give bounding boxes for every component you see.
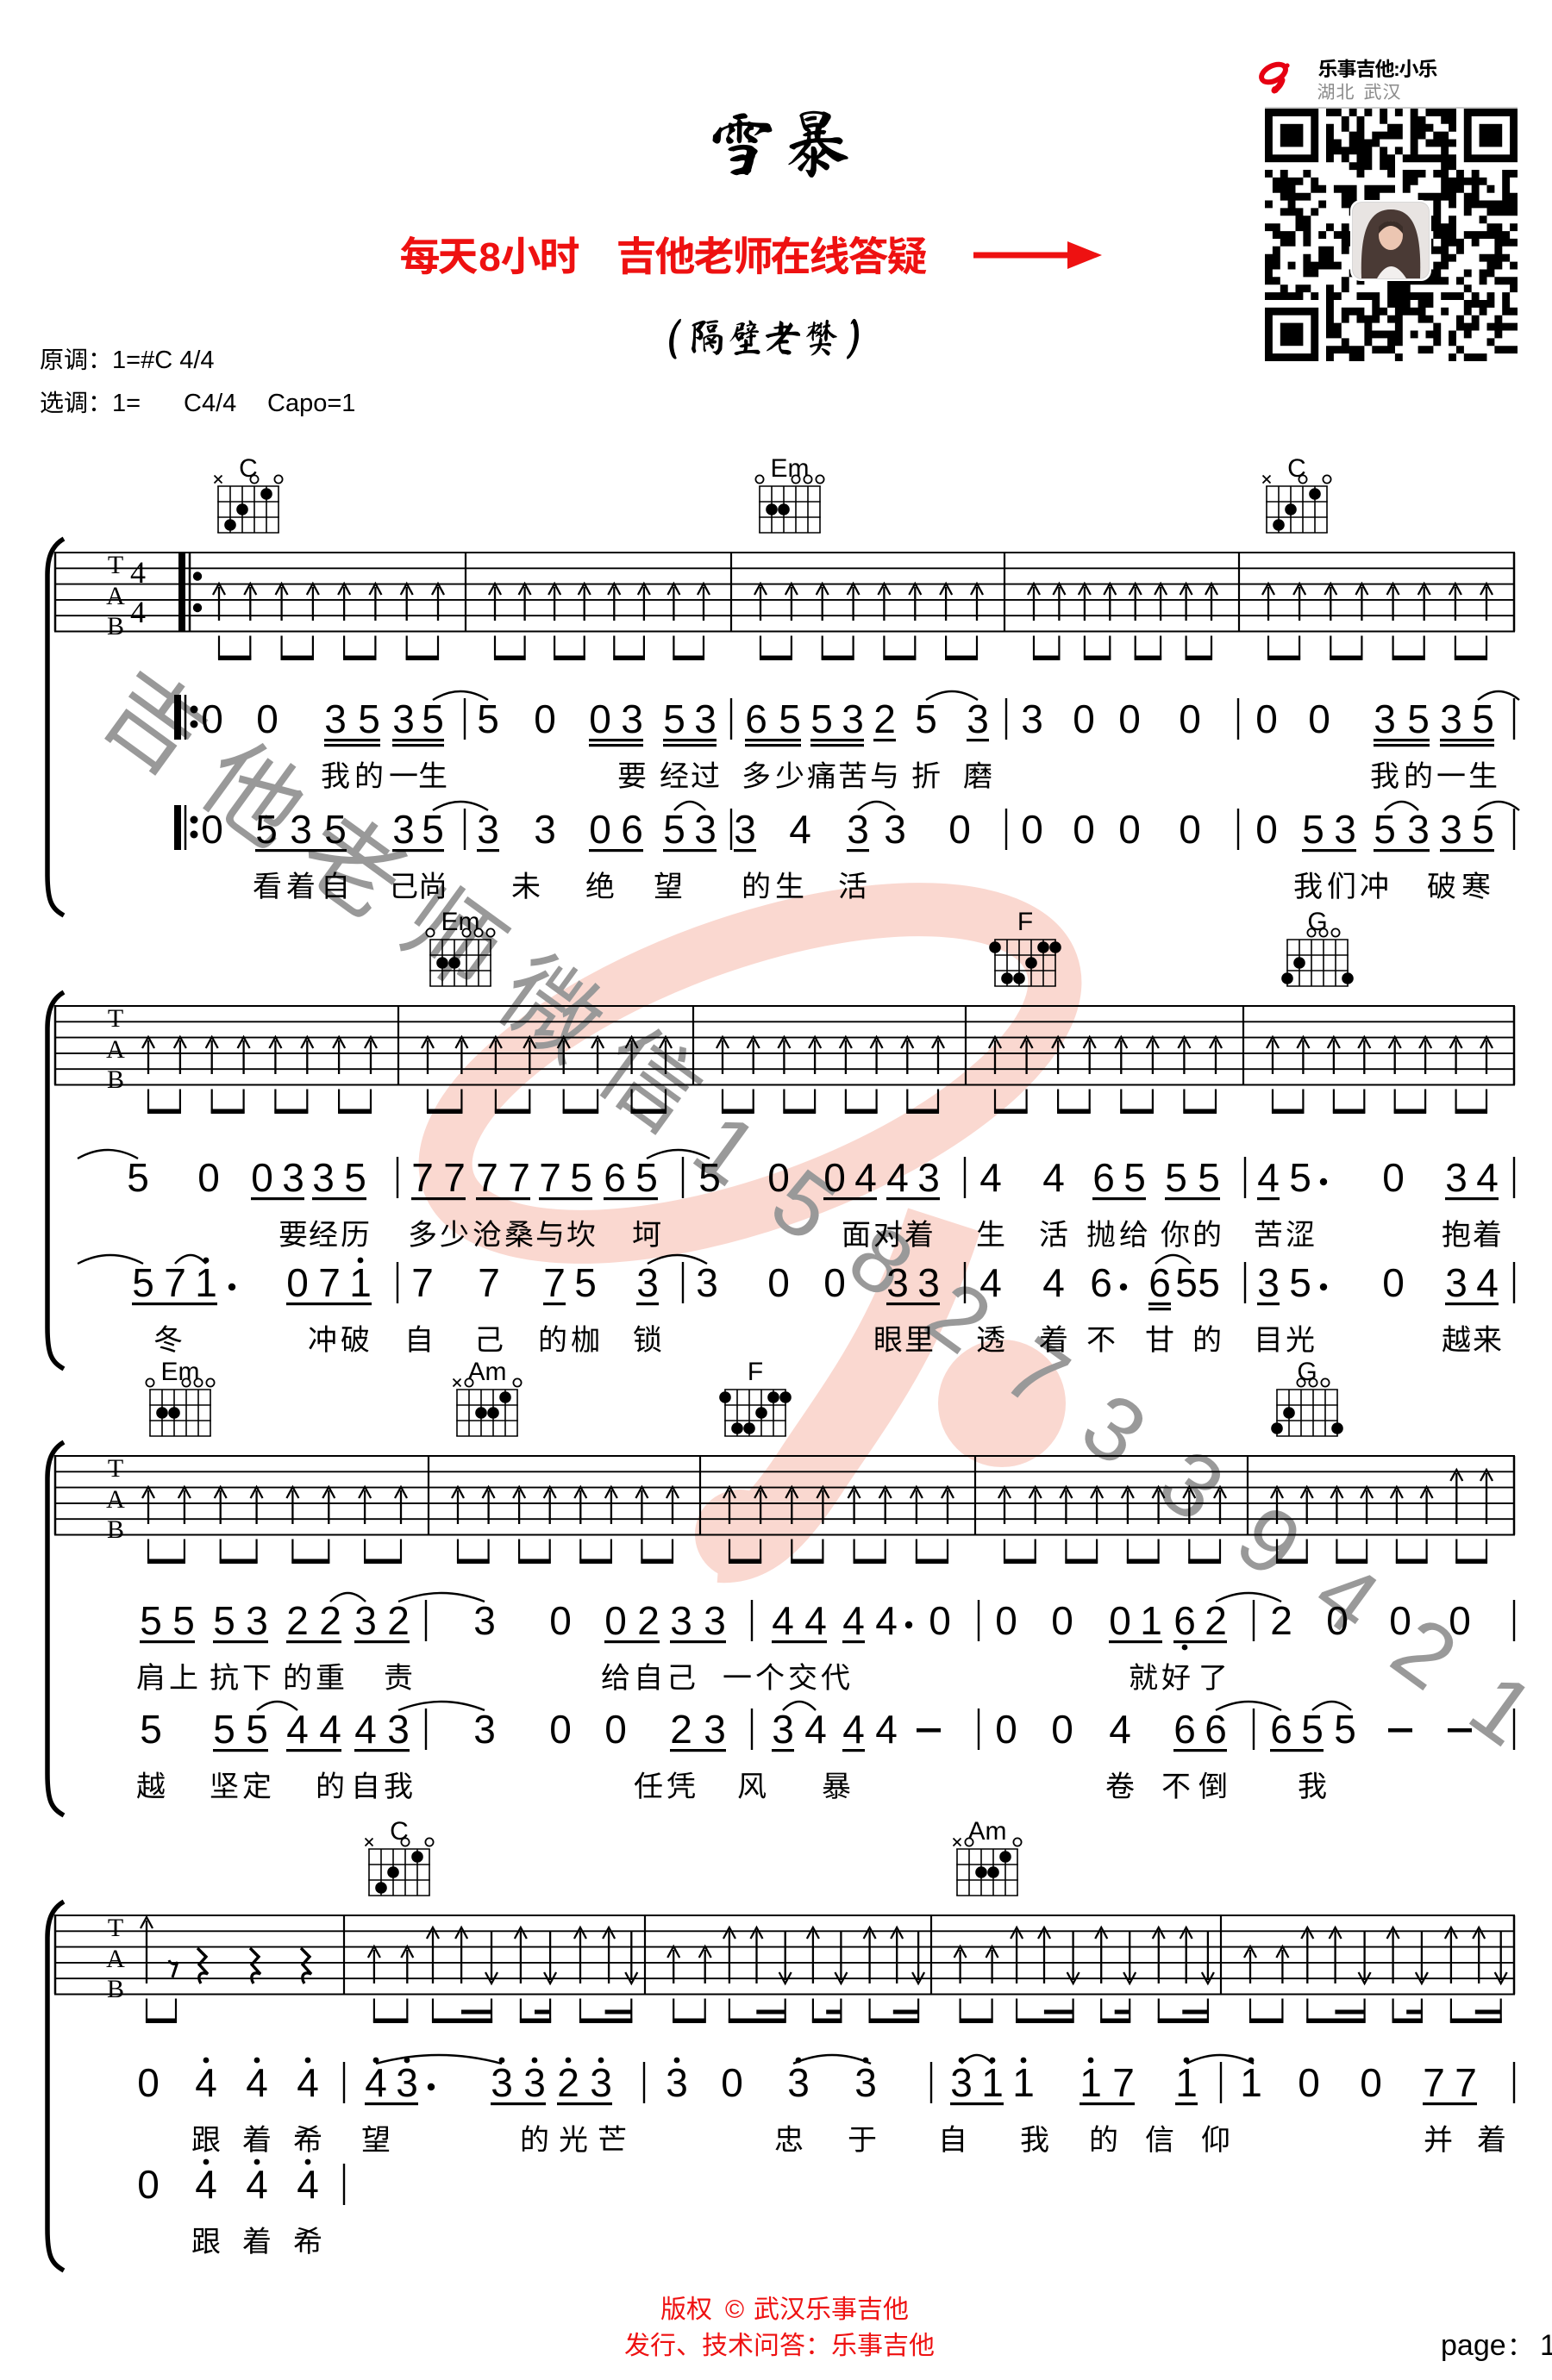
svg-text:0: 0 [1179,807,1201,852]
svg-text:1: 1 [981,2060,1004,2105]
svg-text:0: 0 [589,807,611,852]
svg-text:F: F [1017,908,1033,936]
svg-text:0: 0 [286,1260,309,1305]
svg-text:3: 3 [590,2060,612,2105]
svg-text:0: 0 [1179,697,1201,741]
svg-text:4: 4 [886,1155,909,1200]
svg-text:1: 1 [1540,2329,1552,2362]
svg-text:3: 3 [694,807,717,852]
svg-text:3: 3 [354,1598,377,1643]
svg-text:3: 3 [886,1260,909,1305]
svg-text:4: 4 [1476,1260,1499,1305]
svg-text:4: 4 [854,1155,877,1200]
svg-text:3: 3 [324,697,347,741]
svg-text:0: 0 [197,1155,220,1200]
svg-text:0: 0 [201,697,223,741]
svg-text::: : [1393,58,1400,80]
svg-text:4: 4 [1109,1707,1131,1752]
svg-text:0: 0 [251,1155,273,1200]
svg-text:0: 0 [929,1598,951,1643]
svg-text:6: 6 [1173,1707,1196,1752]
svg-text:5: 5 [358,697,380,741]
svg-text:2: 2 [319,1598,341,1643]
svg-text:5: 5 [140,1598,162,1643]
svg-text:3: 3 [772,1707,794,1752]
svg-text:4: 4 [875,1598,898,1643]
svg-text:4: 4 [365,2060,387,2105]
svg-text:5: 5 [213,1598,235,1643]
svg-text:3: 3 [621,697,643,741]
svg-text:0: 0 [1326,1598,1349,1643]
svg-text:5: 5 [246,1707,268,1752]
svg-text:6: 6 [604,1155,626,1200]
svg-text:A: A [106,1485,125,1514]
svg-text:0: 0 [1382,1260,1405,1305]
svg-text:2: 2 [1270,1598,1292,1643]
svg-text:7: 7 [1455,2060,1477,2105]
svg-text:3: 3 [290,807,312,852]
svg-text:1: 1 [1240,2060,1262,2105]
svg-text:0: 0 [1449,1598,1471,1643]
svg-text:0: 0 [767,1260,790,1305]
svg-text:0: 0 [1051,1598,1073,1643]
svg-text:0: 0 [948,807,971,852]
svg-text:0: 0 [1298,2060,1320,2105]
svg-text:4: 4 [195,2162,217,2207]
svg-text:3: 3 [704,1707,726,1752]
svg-text:2: 2 [873,697,896,741]
svg-text:0: 0 [1051,1707,1073,1752]
svg-text:A: A [106,1945,125,1973]
svg-text:0: 0 [1021,807,1043,852]
svg-text:5: 5 [213,1707,235,1752]
svg-text:5: 5 [127,1155,149,1200]
svg-text:0: 0 [604,1707,627,1752]
svg-text:5: 5 [1302,807,1324,852]
svg-text:5: 5 [172,1598,195,1643]
svg-text:0: 0 [1255,807,1278,852]
svg-text:3: 3 [1334,807,1356,852]
svg-text:F: F [748,1358,763,1386]
svg-text:page: page [1441,2329,1506,2362]
svg-text:5: 5 [1289,1155,1311,1200]
svg-text:3: 3 [392,697,415,741]
svg-text:7: 7 [1112,2060,1135,2105]
svg-text:3: 3 [246,1598,268,1643]
svg-text:5: 5 [1198,1260,1220,1305]
svg-text:4: 4 [1042,1260,1065,1305]
svg-text:6: 6 [745,697,767,741]
svg-text:5: 5 [1175,1260,1198,1305]
svg-text:0: 0 [823,1155,846,1200]
svg-text:3: 3 [534,807,556,852]
svg-text:3: 3 [473,1598,496,1643]
svg-text:4: 4 [842,1707,865,1752]
svg-text:3: 3 [1445,1155,1468,1200]
svg-text:3: 3 [696,1260,718,1305]
svg-text:5: 5 [255,807,278,852]
svg-text:0: 0 [137,2162,160,2207]
svg-text:0: 0 [1109,1598,1131,1643]
svg-text:5: 5 [635,1155,658,1200]
svg-text:4: 4 [354,1707,377,1752]
svg-text:3: 3 [1407,807,1430,852]
svg-text:4: 4 [1042,1155,1065,1200]
svg-text:7: 7 [443,1155,466,1200]
svg-text:5: 5 [810,697,833,741]
svg-text:0: 0 [1073,807,1095,852]
svg-text:3: 3 [1374,697,1396,741]
svg-text:3: 3 [734,807,756,852]
svg-text:0: 0 [1255,697,1278,741]
svg-text:2: 2 [1205,1598,1227,1643]
svg-text:3: 3 [1257,1260,1280,1305]
svg-text:B: B [107,1515,124,1544]
svg-text:3: 3 [1021,697,1043,741]
svg-text:C4/4: C4/4 [184,390,236,417]
svg-text:5: 5 [698,1155,721,1200]
svg-text:7: 7 [543,1260,566,1305]
svg-text:3: 3 [312,1155,335,1200]
svg-text:T: T [108,1004,123,1033]
svg-text:3: 3 [477,807,499,852]
svg-text:5: 5 [422,807,444,852]
svg-text:4: 4 [246,2162,268,2207]
svg-text:3: 3 [396,2060,418,2105]
svg-text:5: 5 [140,1707,162,1752]
svg-text:5: 5 [422,697,444,741]
svg-text:0: 0 [995,1707,1017,1752]
svg-text:7: 7 [476,1155,498,1200]
svg-text:B: B [107,612,124,640]
svg-text:4: 4 [1257,1155,1280,1200]
svg-text:5: 5 [1165,1155,1187,1200]
svg-text:7: 7 [1423,2060,1445,2105]
svg-text:0: 0 [1389,1598,1411,1643]
svg-text:4: 4 [979,1260,1002,1305]
svg-text:3: 3 [282,1155,304,1200]
svg-text:T: T [108,551,123,579]
svg-text:0: 0 [1118,807,1141,852]
svg-text:5: 5 [477,697,499,741]
svg-text:7: 7 [164,1260,186,1305]
svg-text:4: 4 [297,2162,319,2207]
svg-text:0: 0 [1073,697,1095,741]
svg-text:0: 0 [1308,697,1330,741]
svg-text:5: 5 [570,1155,592,1200]
svg-text:5: 5 [1301,1707,1324,1752]
svg-text:6: 6 [1205,1707,1227,1752]
svg-text:4: 4 [842,1598,865,1643]
svg-text:0: 0 [549,1598,572,1643]
svg-text:3: 3 [917,1155,940,1200]
svg-text:4: 4 [804,1707,827,1752]
svg-text:4: 4 [979,1155,1002,1200]
svg-text:0: 0 [823,1260,846,1305]
svg-text:4: 4 [804,1598,827,1643]
svg-text:6: 6 [1090,1260,1112,1305]
svg-text:3: 3 [473,1707,496,1752]
svg-text:3: 3 [1440,697,1462,741]
svg-text:1=#C 4/4: 1=#C 4/4 [112,347,215,374]
svg-text:5: 5 [1289,1260,1311,1305]
svg-text:5: 5 [132,1260,154,1305]
svg-text:5: 5 [344,1155,366,1200]
svg-text:5: 5 [1374,807,1396,852]
svg-text:3: 3 [636,1260,659,1305]
svg-text:4: 4 [297,2060,319,2105]
svg-text:T: T [108,1914,123,1942]
svg-text:B: B [107,1065,124,1094]
svg-text:1: 1 [1175,2060,1198,2105]
svg-text:0: 0 [589,697,611,741]
svg-text:3: 3 [847,807,869,852]
svg-text:7: 7 [318,1260,341,1305]
svg-text:3: 3 [884,807,906,852]
svg-text:5: 5 [915,697,937,741]
svg-text:7: 7 [508,1155,530,1200]
svg-text:0: 0 [1382,1155,1405,1200]
svg-text:5: 5 [1334,1707,1356,1752]
svg-text:3: 3 [523,2060,546,2105]
svg-text:0: 0 [721,2060,743,2105]
svg-text:0: 0 [201,807,223,852]
svg-text:4: 4 [772,1598,794,1643]
svg-text:4: 4 [130,555,146,590]
svg-text:6: 6 [1092,1155,1115,1200]
svg-text:A: A [106,582,125,610]
svg-text:0: 0 [137,2060,160,2105]
svg-text:4: 4 [195,2060,217,2105]
svg-text:3: 3 [917,1260,940,1305]
svg-text:3: 3 [854,2060,877,2105]
svg-text:2: 2 [286,1598,309,1643]
svg-text:5: 5 [324,807,347,852]
svg-text:6: 6 [1173,1598,1196,1643]
svg-text:3: 3 [694,697,717,741]
svg-text:5: 5 [663,697,685,741]
svg-text:4: 4 [130,595,146,629]
svg-text:0: 0 [256,697,278,741]
svg-text:3: 3 [842,697,864,741]
svg-text:4: 4 [1476,1155,1499,1200]
svg-text:7: 7 [411,1155,434,1200]
svg-text:3: 3 [392,807,415,852]
svg-text:3: 3 [704,1598,726,1643]
svg-text:4: 4 [286,1707,309,1752]
svg-text:©: © [725,2296,744,2324]
svg-text:4: 4 [875,1707,898,1752]
svg-text:3: 3 [491,2060,513,2105]
svg-text:0: 0 [995,1598,1017,1643]
svg-text:B: B [107,1975,124,2003]
svg-text:0: 0 [1360,2060,1382,2105]
svg-text:6: 6 [1270,1707,1292,1752]
svg-text:7: 7 [539,1155,561,1200]
svg-text:1: 1 [1140,1598,1162,1643]
svg-text:7: 7 [478,1260,500,1305]
svg-text:3: 3 [967,697,989,741]
svg-text:2: 2 [670,1707,692,1752]
svg-text:3: 3 [387,1707,410,1752]
svg-text:0: 0 [1118,697,1141,741]
svg-text:T: T [108,1454,123,1483]
svg-text:3: 3 [787,2060,810,2105]
svg-text:3: 3 [950,2060,973,2105]
svg-text:4: 4 [319,1707,341,1752]
svg-text:A: A [106,1035,125,1064]
svg-text:2: 2 [387,1598,410,1643]
svg-text:1=: 1= [112,390,141,417]
svg-text:7: 7 [411,1260,434,1305]
svg-text:3: 3 [666,2060,688,2105]
svg-text:1: 1 [349,1260,372,1305]
svg-text:0: 0 [549,1707,572,1752]
svg-text:5: 5 [1407,697,1430,741]
svg-text:0: 0 [534,697,556,741]
svg-text:5: 5 [663,807,685,852]
svg-text:3: 3 [670,1598,692,1643]
svg-text:1: 1 [195,1260,217,1305]
svg-text:4: 4 [789,807,811,852]
svg-text:6: 6 [1148,1260,1171,1305]
svg-text:5: 5 [574,1260,597,1305]
svg-text:5: 5 [779,697,801,741]
svg-text:5: 5 [1198,1155,1220,1200]
svg-text:0: 0 [604,1598,627,1643]
svg-text:4: 4 [246,2060,268,2105]
svg-text:1: 1 [1080,2060,1102,2105]
svg-text:2: 2 [557,2060,579,2105]
svg-text:6: 6 [621,807,643,852]
svg-text:5: 5 [1472,697,1494,741]
svg-text:0: 0 [767,1155,790,1200]
svg-text:5: 5 [1472,807,1494,852]
svg-text:Capo=1: Capo=1 [267,390,355,417]
svg-text:3: 3 [1440,807,1462,852]
svg-text:2: 2 [637,1598,660,1643]
svg-text:8: 8 [479,234,501,279]
svg-text:1: 1 [1012,2060,1035,2105]
svg-text:5: 5 [1123,1155,1146,1200]
svg-text:3: 3 [1445,1260,1468,1305]
